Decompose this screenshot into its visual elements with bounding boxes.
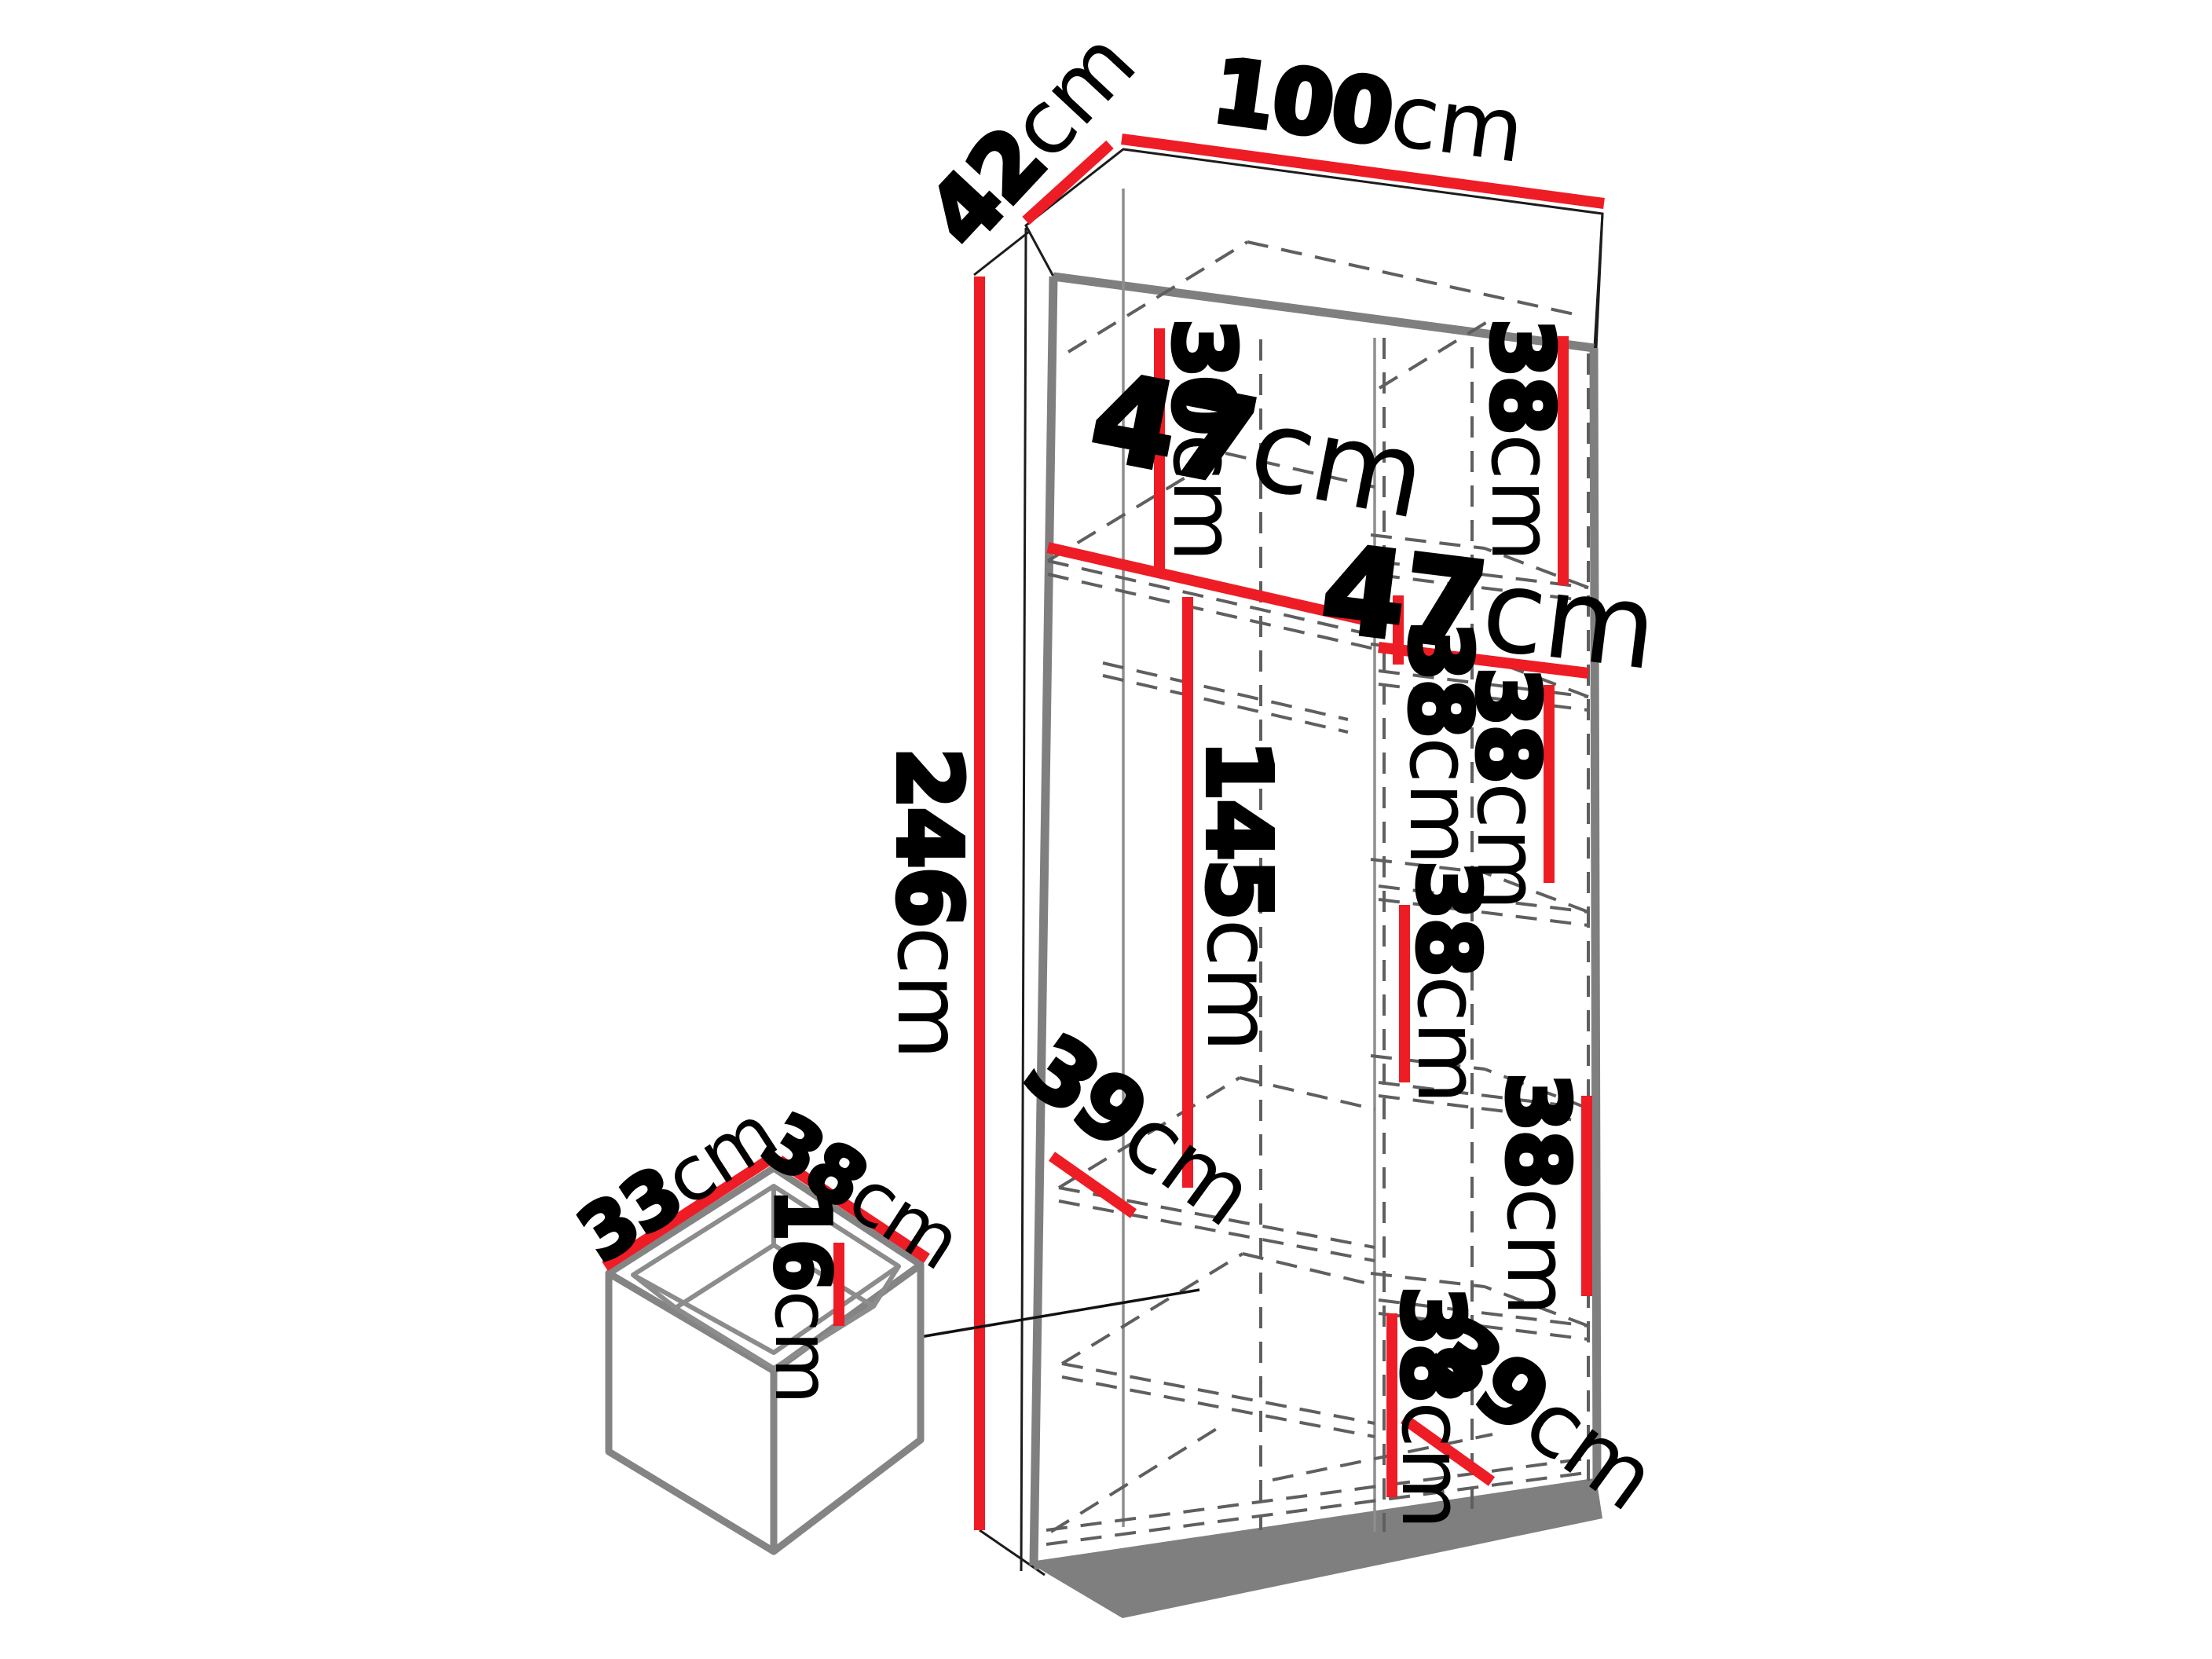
svg-text:145cm: 145cm	[1187, 740, 1289, 1051]
wardrobe-dimension-diagram: 100cm 42cm 246cm 30cm 47cm 145cm 39cm 47…	[0, 0, 2212, 1659]
left-bottom-shelf-bottom-line	[1062, 1377, 1375, 1437]
svg-text:38cm: 38cm	[1398, 861, 1496, 1104]
dim-label-shelf38-4: 38cm	[1398, 861, 1496, 1104]
dim-label-hanging-height: 145cm	[1187, 740, 1289, 1051]
hanging-rod-top-dash	[1103, 663, 1348, 720]
dim-label-shelf38-1: 38cm	[1472, 319, 1570, 562]
dim-label-left-column-width: 47cm	[1082, 348, 1436, 546]
dim-label-shelf38-5: 38cm	[1488, 1073, 1586, 1316]
svg-text:246cm: 246cm	[877, 748, 980, 1059]
svg-text:47cm: 47cm	[1082, 348, 1436, 546]
outer-left-edge	[1021, 228, 1026, 1571]
floor-depth-dash	[1051, 1423, 1225, 1532]
svg-text:38cm: 38cm	[1488, 1073, 1586, 1316]
opening-left-edge	[1034, 276, 1053, 1566]
dim-label-overall-height: 246cm	[877, 748, 980, 1059]
svg-text:38cm: 38cm	[1472, 319, 1570, 562]
hanging-rod-bottom-dash	[1103, 676, 1348, 732]
svg-text:16cm: 16cm	[758, 1188, 846, 1404]
right-edge	[1594, 348, 1597, 1482]
dim-label-drawer-height: 16cm	[758, 1188, 846, 1404]
left-bottom-shelf-back-dash	[1243, 1254, 1375, 1285]
left-bottom-shelf-top-line	[1062, 1364, 1375, 1423]
